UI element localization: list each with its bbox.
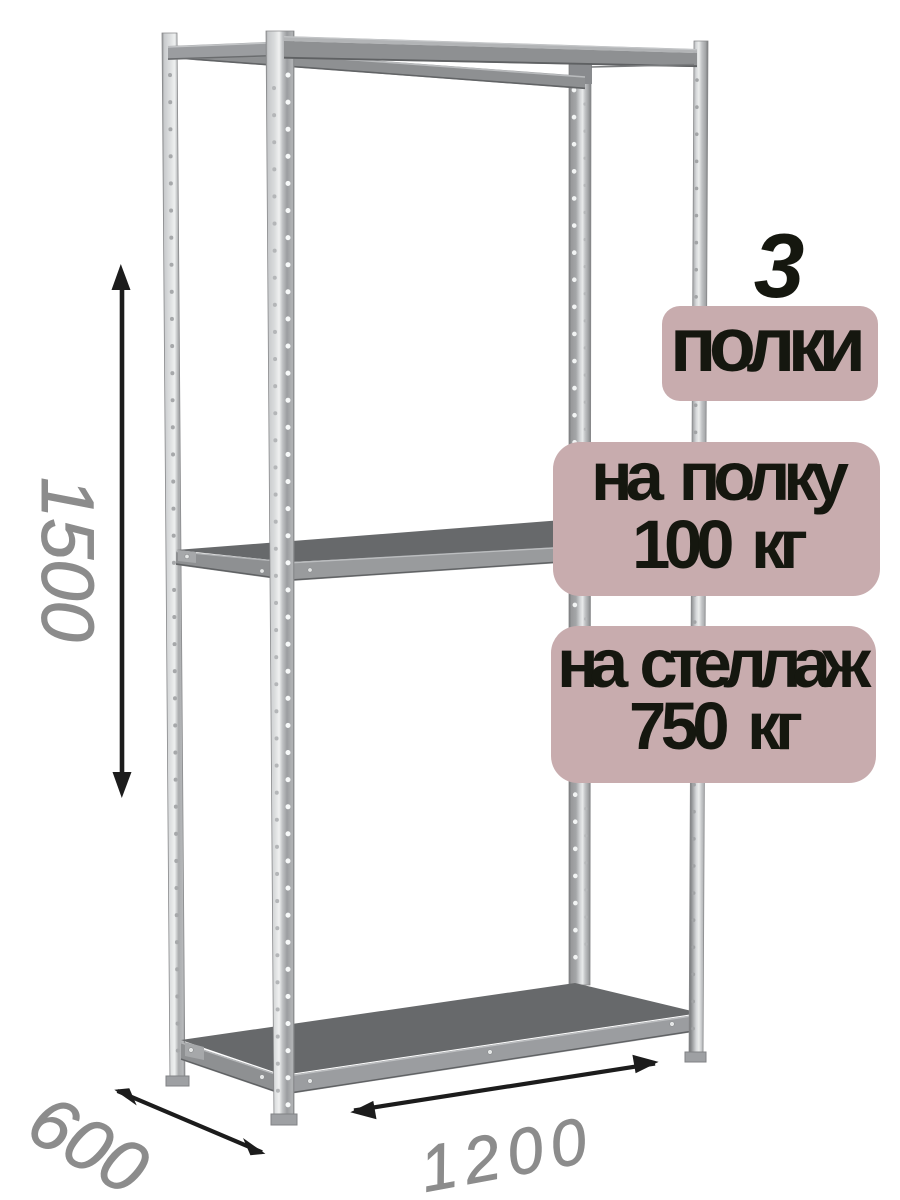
svg-text:1500: 1500 (26, 477, 109, 642)
svg-text:100 кг: 100 кг (632, 506, 808, 583)
svg-text:полки: полки (670, 302, 866, 388)
svg-text:600: 600 (15, 1080, 161, 1200)
svg-text:на полку: на полку (591, 438, 849, 515)
svg-text:750 кг: 750 кг (629, 689, 803, 764)
svg-text:1200: 1200 (414, 1103, 600, 1200)
